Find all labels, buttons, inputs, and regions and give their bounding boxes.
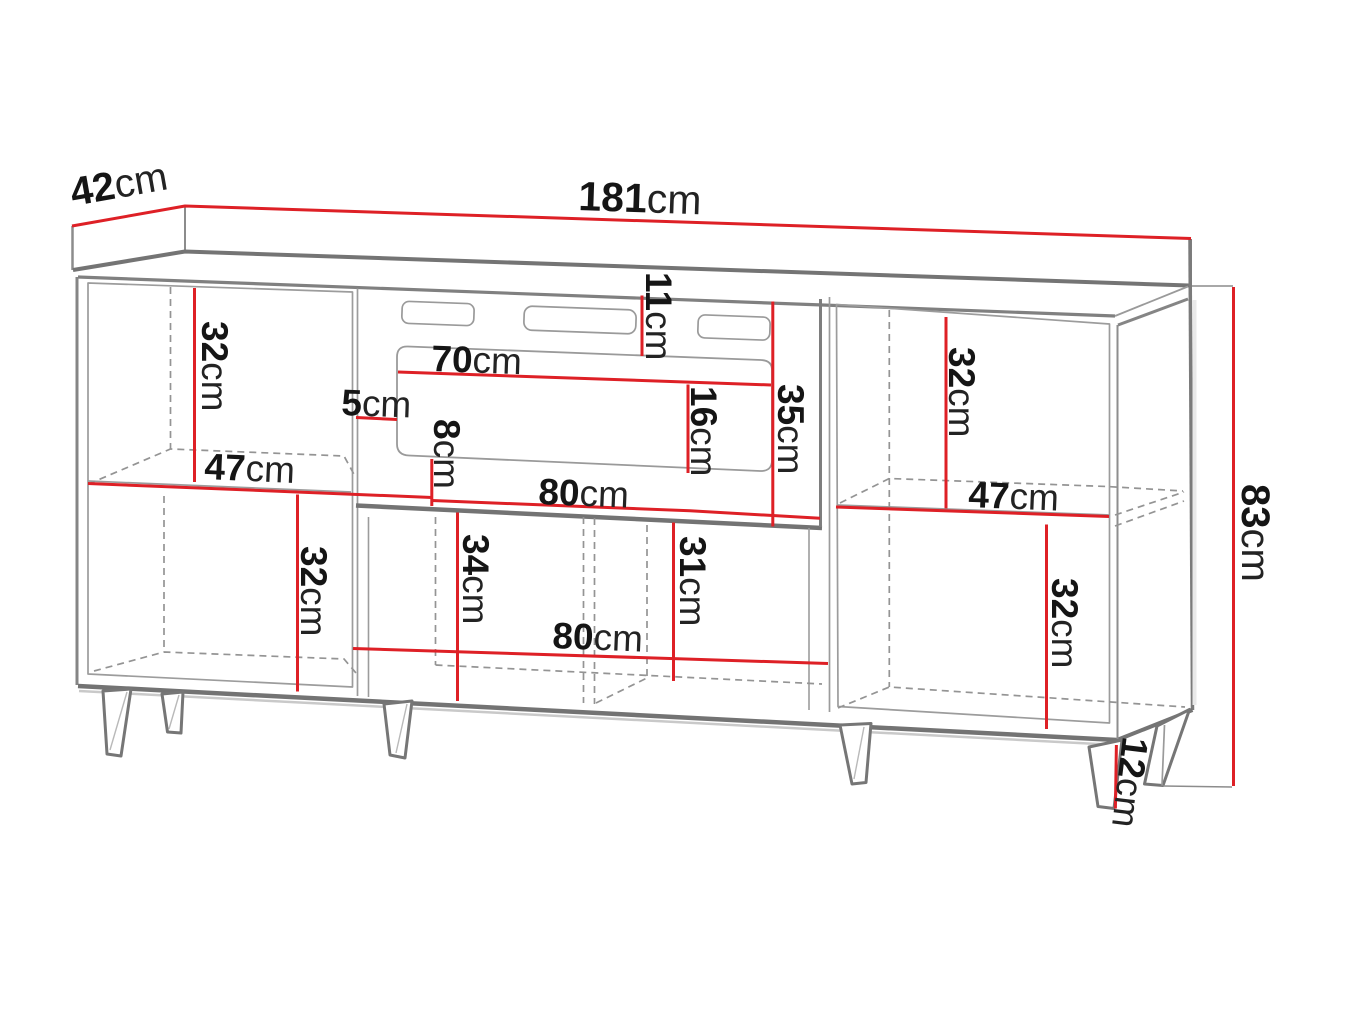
svg-text:181cm: 181cm [578,173,703,223]
svg-text:8cm: 8cm [426,419,467,489]
svg-text:32cm: 32cm [941,347,982,437]
svg-text:11cm: 11cm [638,272,679,360]
svg-text:32cm: 32cm [194,321,235,411]
svg-text:80cm: 80cm [552,615,644,660]
svg-text:83cm: 83cm [1233,484,1277,582]
svg-text:47cm: 47cm [204,446,296,491]
svg-text:47cm: 47cm [968,474,1060,519]
svg-text:31cm: 31cm [672,536,713,626]
svg-text:32cm: 32cm [293,546,334,636]
svg-text:34cm: 34cm [455,534,496,624]
svg-text:80cm: 80cm [538,471,630,516]
svg-text:35cm: 35cm [770,384,811,474]
svg-text:32cm: 32cm [1044,578,1085,668]
svg-text:5cm: 5cm [341,382,412,425]
svg-text:70cm: 70cm [431,338,523,382]
svg-text:16cm: 16cm [683,386,724,476]
